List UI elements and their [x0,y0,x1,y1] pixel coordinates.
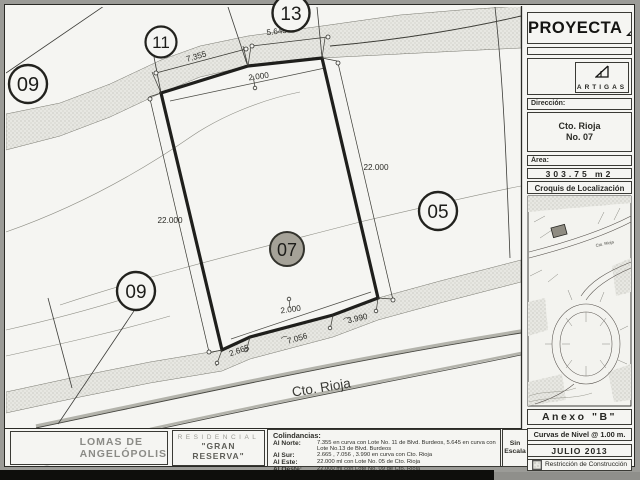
lot-marker-05: 05 [419,192,457,230]
svg-text:09: 09 [125,282,146,303]
colindancia-value: 7.355 en curva con Lote No. 11 de Blvd. … [317,440,500,452]
svg-text:07: 07 [277,240,297,260]
setback-lines [170,68,371,339]
artigas-logo-text: ARTIGAS [576,84,628,91]
restriccion-row: Restricción de Construcción [527,459,632,471]
scan-edge-gray [494,472,640,480]
lomas-brand-box: LOMAS DE ANGELÓPOLIS [10,431,168,465]
colindancia-value: 2.665 , 7.056 , 3.990 en curva con Cto. … [317,452,500,458]
brand-line1: LOMAS DE [80,436,167,448]
artigas-logo-box: ARTIGAS [575,62,629,93]
scan-edge-dark [0,470,494,480]
colindancia-label: Al Norte: [273,440,313,447]
svg-text:13: 13 [280,4,301,25]
colindancias-box: Colindancias: Al Norte: 7.355 en curva c… [267,429,501,467]
croquis-map: Cto. Rioja [528,196,631,406]
dim-west: 22.000 [157,216,182,225]
proyecta-triangle-icon [625,19,631,37]
spacer-box [527,47,632,55]
lot-marker-07-subject: 07 [270,232,304,266]
svg-text:09: 09 [17,74,39,96]
lot-marker-11: 11 [146,27,177,58]
reserva-line2: RESERVA" [173,452,264,462]
restriccion-swatch-icon [532,460,542,470]
road-band-cto-rioja-sidewalk [6,260,521,413]
svg-text:05: 05 [427,202,448,223]
croquis-title: Croquis de Localización [527,181,632,194]
lomas-brand-text: LOMAS DE ANGELÓPOLIS [80,436,167,460]
lot-marker-13: 13 [273,0,310,32]
architect-logos-box: ARTIGAS [527,58,632,95]
direccion-header: Dirección: [527,98,632,110]
direccion-street: Cto. Rioja [528,121,631,132]
colindancias-title: Colindancias: [273,431,500,440]
dim-setback-bottom: 2.000 [280,304,302,316]
direccion-value: Cto. Rioja No. 07 [527,112,632,152]
artigas-glyph-icon [595,65,610,78]
proyecta-logo-text: PROYECTA [528,19,622,38]
lot-marker-09-bottom: 09 [117,272,155,310]
area-header: Área: [527,155,632,166]
lot-07-boundary [161,58,378,350]
brand-line2: ANGELÓPOLIS [80,448,167,460]
escala-line1: Sin [503,440,527,448]
area-value: 303.75 m2 [527,168,632,179]
curvas-label: Curvas de Nivel @ 1.00 m. [527,428,632,441]
escala-line2: Escala [503,448,527,456]
restriccion-label: Restricción de Construcción [545,460,627,470]
colindancia-label: Al Sur: [273,452,313,459]
anexo-label: Anexo "B" [527,409,632,425]
residencial-label: RESIDENCIAL [173,434,264,441]
proyecta-logo-box: PROYECTA [527,12,632,44]
residencial-box: RESIDENCIAL "GRAN RESERVA" [172,430,265,466]
colindancia-value: 22.000 ml con Lote No. 05 de Cto. Rioja [317,459,500,465]
direccion-number: No. 07 [528,132,631,143]
fecha-label: JULIO 2013 [527,444,632,457]
lot-marker-09-top: 09 [9,65,47,103]
svg-text:11: 11 [152,33,170,52]
street-label: Cto. Rioja [291,375,352,399]
sin-escala-box: Sin Escala [502,429,528,467]
dim-east: 22.000 [363,163,388,172]
